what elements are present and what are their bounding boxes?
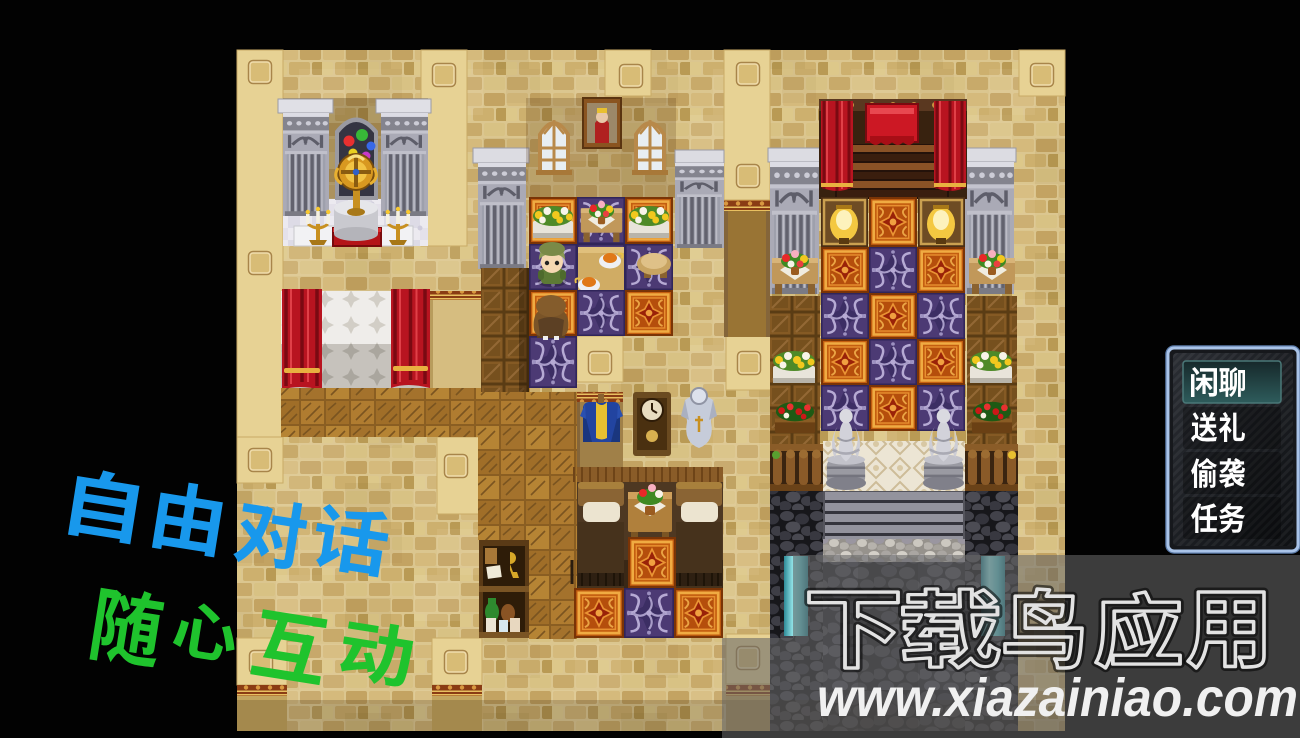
svg-text:www.xiazainiao.com: www.xiazainiao.com <box>817 668 1298 728</box>
